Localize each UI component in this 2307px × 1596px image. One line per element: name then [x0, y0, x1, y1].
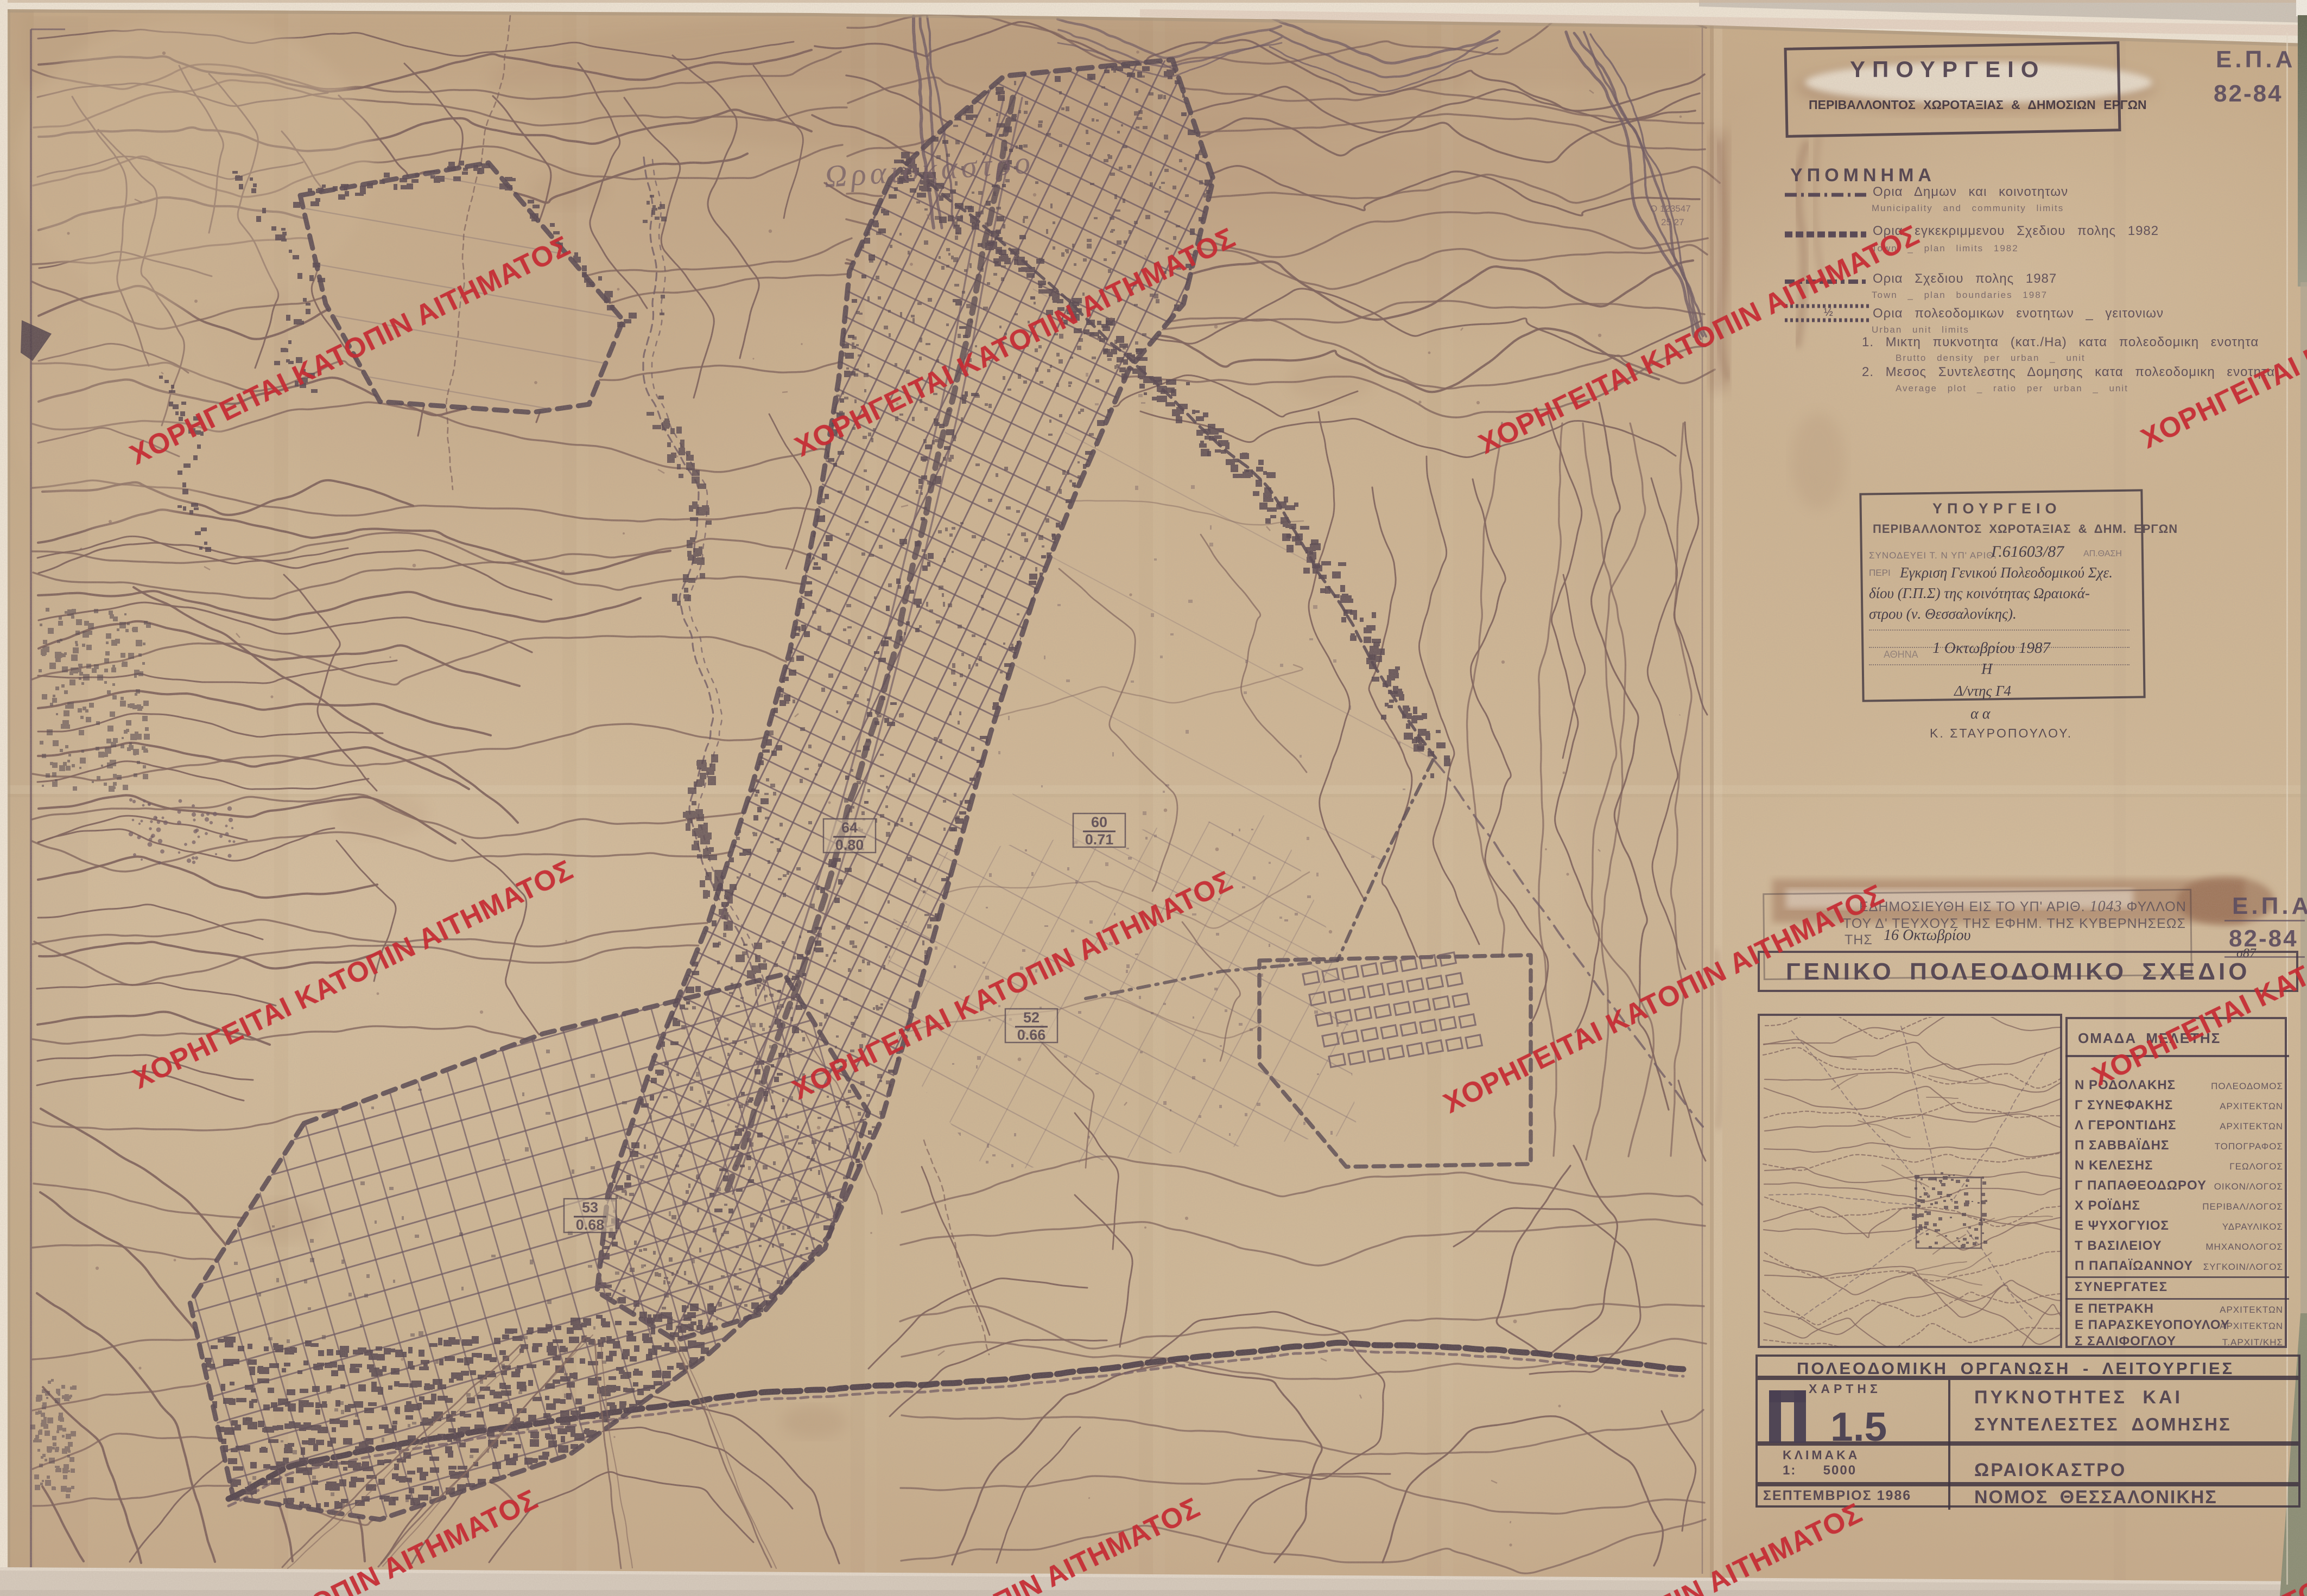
- svg-text:½: ½: [1824, 307, 1833, 319]
